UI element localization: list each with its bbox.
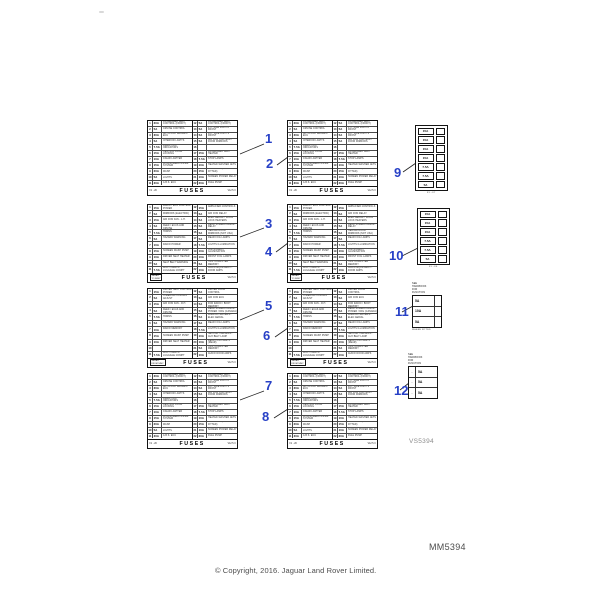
footer-left-code: F1 - 20 xyxy=(288,190,298,192)
fuse-description: HAZARD WARNING xyxy=(302,236,332,241)
strip-box: 15A15A15A15A7.5A7.5A5A xyxy=(415,125,448,191)
fuse-rating xyxy=(338,145,347,150)
fuse-description: ANTI-LOCK BRAKES / ECU xyxy=(162,386,192,391)
callout-2: 2 xyxy=(266,157,273,170)
fuse-description: LCD HARNESS LOOM FOR RADIO / BOOT MEMORY xyxy=(207,302,237,307)
fuse-table-half: 115ARADIO / ECU CONTROL POWER25AMIRRORS … xyxy=(148,205,192,273)
fuse-description xyxy=(207,145,237,150)
fuse-row: 5A xyxy=(413,317,441,327)
fuse-description: WINDSCREEN WIPER SYSTEM xyxy=(162,163,192,168)
fuse-rating xyxy=(338,398,347,403)
fuse-rating: 5A xyxy=(198,321,207,326)
fuse-slot xyxy=(434,307,441,317)
fuse-description: SUN ROOF (WHERE FITTED) xyxy=(347,169,377,174)
fuse-description: R.H. SIDE LIGHTS FRONT xyxy=(347,386,377,391)
fuse-table-1: 130APASSENGER SEAT CONTROL (FRONT)25ACRU… xyxy=(147,120,238,196)
fuse-rating: 15A xyxy=(198,422,207,427)
fuse-rating: 5A xyxy=(416,367,437,377)
fuse-description: L.H. SIDE LIGHTS FRONT xyxy=(207,127,237,132)
fuse-description: ANTI-LOCK BRAKES / ECU xyxy=(302,386,332,391)
fuse-description: R.H. SIDE LIGHTS FRONT xyxy=(347,133,377,138)
fuse-rating: 5A xyxy=(153,380,162,385)
fuse-rating: 7.5A xyxy=(418,172,434,180)
footer-right-code: V12 5.3 xyxy=(366,190,377,192)
fuse-table-half: 125APASSENGER SEAT CONTROL (FRONT)135AL.… xyxy=(192,374,237,439)
fuse-rating: 15A xyxy=(198,151,207,156)
fuse-description: PASSENGER SEAT CONTROL (FRONT) xyxy=(302,121,332,126)
fuses-title: FUSES xyxy=(166,360,226,366)
fuse-description: COURTESY MIRROR LIGHTS xyxy=(162,175,192,180)
fuse-description: RADIO TELEPHONE IGN FEED / ECUS AND CRUI… xyxy=(302,224,332,229)
diagram-code: VS5394 xyxy=(409,438,434,445)
fuse-description: DRIVER DOOR CONTROL xyxy=(207,289,237,294)
fuse-description: LIGHTS ILLUMINATION xyxy=(207,327,237,332)
fuse-rating xyxy=(153,346,162,351)
fuse-description: CIGAR LIGHTER xyxy=(302,157,332,162)
fuse-description: LIGHTS ILLUMINATION xyxy=(347,327,377,332)
fuse-description: SECOND HARNESS / AUX BELT LAMP xyxy=(207,333,237,338)
fuse-rating: 7.5A xyxy=(338,242,347,247)
fuse-rating: 7.5A xyxy=(420,237,436,245)
fuse-rating: 5A xyxy=(198,346,207,351)
fuse-slot xyxy=(438,237,447,245)
fuse-description: WINDSCREEN WIPER SYSTEM xyxy=(162,416,192,421)
fuse-rating: 30A xyxy=(293,121,302,126)
fuse-description: MIRROR HEATERS / ELEC AERIAL xyxy=(207,314,237,319)
fuse-description: ELEC AERIAL / DOOR LOCK HEATERS xyxy=(347,217,377,222)
fuse-table-footer: SEDANTO 94MYFUSESV12 5.3 xyxy=(288,273,377,283)
fuse-description: AIR CON RELAY xyxy=(207,211,237,216)
fuses-title: FUSES xyxy=(162,275,226,281)
fuse-rating: 30A xyxy=(153,386,162,391)
fuse-description: HEADLAMP POWER WASH xyxy=(162,169,192,174)
fuse-description: STOP LAMPS xyxy=(207,157,237,162)
fuse-rating: 5A xyxy=(338,217,347,222)
fuse-rating: 7.5A xyxy=(198,242,207,247)
fuse-rating: 5A xyxy=(413,296,434,306)
fuse-rating: 10A xyxy=(153,410,162,415)
fuse-description: INSTRUMENT ILLUMINATION xyxy=(207,249,237,254)
fuse-description xyxy=(302,346,332,351)
fuse-rating: 5A xyxy=(153,175,162,180)
fuse-rating: 15A xyxy=(293,289,302,294)
fuse-description: CIGAR LIGHTER xyxy=(302,410,332,415)
fuse-description: HEADLAMP POWER WASH xyxy=(162,422,192,427)
fuse-rating: 15A xyxy=(198,404,207,409)
fuse-row: 10A xyxy=(413,307,441,318)
fuse-rating: 7.5A xyxy=(153,398,162,403)
footer-right-code: V12 5.3 xyxy=(366,443,377,445)
fuse-rating: 5A xyxy=(413,317,434,327)
fuse-rating: 5A xyxy=(418,181,434,189)
fuse-rating: 10A xyxy=(293,255,302,260)
fuse-description: AMPLIFIER CONTROLS xyxy=(207,205,237,210)
fuse-rating: 15A xyxy=(338,151,347,156)
fuse-description: AIR CON FAN - R.H. xyxy=(302,302,332,307)
fuse-rating: 15A xyxy=(338,205,347,210)
fuse-description: AIR CON ECU xyxy=(347,295,377,300)
fuse-description: RADIO / ECU CONTROL POWER xyxy=(302,205,332,210)
fuse-description: DIRECTION INDICATORS xyxy=(162,398,192,403)
fuse-description: AIR CON CONTROL / DOOR MIRRORS xyxy=(347,139,377,144)
fuse-rating: 10A xyxy=(413,307,434,317)
fuse-table-footer: SEDANFROM 94MYFUSESV12 5.3 xyxy=(148,358,237,368)
footer-variant-box: SEDANTO 94MY xyxy=(290,274,303,281)
fuse-rating: 5A xyxy=(198,224,207,229)
fuse-description: STOP LAMPS xyxy=(347,157,377,162)
fuse-table-footer: F1 - 20FUSESV12 5.3 xyxy=(148,186,237,196)
fuse-rating: 10A xyxy=(338,175,347,180)
footer-right-code: V12 5.3 xyxy=(366,362,377,364)
fuse-rating: 15A xyxy=(198,169,207,174)
fuse-rating: 5A xyxy=(293,295,302,300)
fuse-description: CENTRAL DOOR LOCKING xyxy=(162,151,192,156)
fuse-rating: 5A xyxy=(338,121,347,126)
fuse-table-5: 115ADRIVER SEAT CONTROL POWER25ASTEERING… xyxy=(147,288,238,368)
fuse-description: LCD HARNESS LOOM FOR RADIO / BOOT MEMORY xyxy=(347,302,377,307)
fuse-rating: 7.5A xyxy=(198,327,207,332)
leader-line-8 xyxy=(274,409,288,418)
fuse-description: REAR FOG LAMPS xyxy=(347,321,377,326)
fuses-title: FUSES xyxy=(158,188,226,194)
fuse-description: SCREEN WASH PUMP xyxy=(302,249,332,254)
fuse-rating: 7.5A xyxy=(338,410,347,415)
fuse-table-half: 125ADRIVER DOOR CONTROL135AAIR CON ECU14… xyxy=(332,289,377,358)
fuse-rating: 7.5A xyxy=(153,314,162,319)
fuses-title: FUSES xyxy=(306,360,366,366)
fuse-description: CRUISE CONTROL xyxy=(302,127,332,132)
fuse-description: PASSENGER SEAT CONTROL (FRONT) xyxy=(302,374,332,379)
fuse-rating: 15A xyxy=(293,416,302,421)
fuse-rating: 10A xyxy=(153,157,162,162)
fuse-slot xyxy=(438,255,447,263)
fuse-description: INTERIOR LIGHTS xyxy=(302,139,332,144)
fuse-table-half: 130APASSENGER SEAT CONTROL (FRONT)25ACRU… xyxy=(288,374,332,439)
fuse-rating: 5A xyxy=(153,308,162,313)
fuse-description: MIRRORS (ELECTRIC) xyxy=(162,211,192,216)
fuse-description: HAZARD WARNING xyxy=(302,321,332,326)
fuse-rating: 15A xyxy=(418,145,434,153)
mini-table-caption: WHERE FITTED xyxy=(412,329,442,331)
fuse-rating: 7.5A xyxy=(153,145,162,150)
mini-table-11: SEEHANDBOOKFORFUNCTION5A10A5AWHERE FITTE… xyxy=(412,282,442,331)
fuse-description: PASSENGER SEAT CONTROL (FRONT) xyxy=(347,121,377,126)
fuse-row: -5A xyxy=(409,388,437,398)
footer-variant-line: FROM 94MY xyxy=(152,363,164,366)
fuse-rating: 10A xyxy=(198,249,207,254)
fuse-slot-dash: - xyxy=(409,378,416,388)
fuse-description: CRUISE CONTROL xyxy=(162,380,192,385)
fuse-table-half: 115ADRIVER SEAT CONTROL POWER25ASTEERING… xyxy=(288,289,332,358)
fuse-description xyxy=(347,398,377,403)
fuse-description: HORNS xyxy=(162,314,192,319)
fuse-rating: 5A xyxy=(198,302,207,307)
footer-right-code: V12 5.3 xyxy=(226,190,237,192)
fuse-rating: 5A xyxy=(293,139,302,144)
footer-variant-box: SEDANFROM 94MY xyxy=(150,359,166,366)
fuse-description: AMPLIFIER CONTROLS xyxy=(347,205,377,210)
fuse-description: CRUISE CONTROL xyxy=(302,380,332,385)
fuse-table-half: 130APASSENGER SEAT CONTROL (FRONT)25ACRU… xyxy=(288,121,332,186)
fuse-description: DRIVER SEAT HEATER xyxy=(302,340,332,345)
fuse-rating: 5A xyxy=(293,428,302,433)
fuse-description: HEATED DOOR MIRRORS (NOT USA) xyxy=(207,230,237,235)
fuse-description: STOP LAMPS xyxy=(207,410,237,415)
fuse-description: L.H. SIDE LIGHTS FRONT xyxy=(347,380,377,385)
fuse-table-footer: F1 - 20FUSESV12 5.3 xyxy=(288,186,377,196)
fuse-rating: 10A xyxy=(293,340,302,345)
fuse-description: TRIP COMPUTER MEMORY xyxy=(207,346,237,351)
fuse-rating: 15A xyxy=(153,151,162,156)
fuse-description: SUN ROOF (WHERE FITTED) xyxy=(207,169,237,174)
fuse-description: REAR FOG LAMPS (REAR) xyxy=(207,340,237,345)
fuse-rating: 5A xyxy=(153,139,162,144)
fuses-title: FUSES xyxy=(298,188,366,194)
fuse-description: INTERIOR LIGHTS xyxy=(162,392,192,397)
fuse-rating: 5A xyxy=(198,380,207,385)
fuse-rating: 5A xyxy=(198,386,207,391)
fuse-table-2: 130APASSENGER SEAT CONTROL (FRONT)25ACRU… xyxy=(287,120,378,196)
fuse-rating: 30A xyxy=(293,133,302,138)
mini-header-line: FUNCTION xyxy=(408,362,438,365)
fuse-description: STEERING COLUMN ADJUST xyxy=(302,295,332,300)
fuse-table-half: 1215AAMPLIFIER CONTROLS135AAIR CON RELAY… xyxy=(192,205,237,273)
fuse-table-footer: F1 - 20FUSESV12 5.3 xyxy=(288,439,377,449)
fuse-rating: 5A xyxy=(198,392,207,397)
leader-line-10 xyxy=(402,248,418,256)
fuse-description: AIR CON CONTROL / DOOR MIRRORS xyxy=(207,139,237,144)
fuse-slot xyxy=(436,128,445,136)
fuse-slot xyxy=(436,145,445,153)
fuse-rating: 5A xyxy=(293,261,302,266)
fuse-description: CIGAR LIGHTER xyxy=(162,410,192,415)
footer-right-code: V12 5.3 xyxy=(226,443,237,445)
fuse-rating: 10A xyxy=(338,255,347,260)
fuse-rating: 5A xyxy=(293,127,302,132)
fuse-description: DRIVER SEAT HEATER xyxy=(162,340,192,345)
callout-1: 1 xyxy=(265,132,272,145)
fuse-rating: 15A xyxy=(153,302,162,307)
fuse-rating: 15A xyxy=(338,404,347,409)
fuse-rating: 10A xyxy=(153,340,162,345)
footer-variant-box: SEDANTO 94MY xyxy=(150,274,163,281)
fuse-description: HEADLAMP POWER WASH xyxy=(302,422,332,427)
fuse-description: HORNS xyxy=(302,230,332,235)
fuse-rating: 5A xyxy=(198,374,207,379)
fuse-description: ELEC AERIAL / DOOR LOCK HEATERS xyxy=(207,217,237,222)
fuse-rating: 15A xyxy=(420,228,436,236)
fuse-table-body: 130APASSENGER SEAT CONTROL (FRONT)25ACRU… xyxy=(288,374,377,439)
fuse-description: PASSENGER SEAT HEATER xyxy=(347,151,377,156)
fuse-description: AIR CON ECU xyxy=(207,295,237,300)
fuse-description: DIRECTION INDICATORS xyxy=(302,398,332,403)
fuse-description: PASSENGER SEAT HEATER xyxy=(347,404,377,409)
fuse-rating: 5A xyxy=(338,346,347,351)
fuse-rating: 5A xyxy=(338,139,347,144)
fuse-description: WINDSCREEN WIPER SYSTEM xyxy=(302,163,332,168)
fuse-rating: 10A xyxy=(338,428,347,433)
callout-7: 7 xyxy=(265,379,272,392)
strip-table-9: 15A15A15A15A7.5A7.5A5AF1 - F7 xyxy=(415,125,448,194)
fuse-table-footer: F1 - 20FUSESV12 5.3 xyxy=(148,439,237,449)
fuse-description: REAR FOG LAMPS xyxy=(207,321,237,326)
fuse-rating: 15A xyxy=(418,136,434,144)
fuse-description: RADIO / ECU CONTROL POWER xyxy=(162,205,192,210)
catalog-page: 130APASSENGER SEAT CONTROL (FRONT)25ACRU… xyxy=(0,0,600,600)
fuse-rating: 20A xyxy=(153,422,162,427)
callout-11: 11 xyxy=(395,305,409,318)
fuse-description: AIR CON FAN - R.H. xyxy=(162,302,192,307)
copyright-line: © Copyright, 2016. Jaguar Land Rover Lim… xyxy=(215,566,376,575)
fuse-rating: 5A xyxy=(198,121,207,126)
fuse-rating: 5A xyxy=(153,127,162,132)
fuse-description: DRIVER SEAT CONTROL POWER xyxy=(162,289,192,294)
fuse-description: AIR CON CONTROL / DOOR MIRRORS xyxy=(207,392,237,397)
fuse-rating: 7.5A xyxy=(293,398,302,403)
fuse-rating: 10A xyxy=(198,175,207,180)
fuse-table-body: 115ADRIVER SEAT CONTROL POWER25ASTEERING… xyxy=(148,289,237,358)
fuse-description: SCREEN POWER RELAY xyxy=(207,428,237,433)
fuse-rating: 15A xyxy=(293,404,302,409)
footer-left-code: F1 - 20 xyxy=(148,443,158,445)
fuse-description: LIGHTS ILLUMINATION xyxy=(207,242,237,247)
fuse-rating: 15A xyxy=(338,422,347,427)
fuse-description: PASSENGER SEAT CONTROL (FRONT) xyxy=(162,121,192,126)
fuse-rating: 5A xyxy=(153,211,162,216)
fuses-title: FUSES xyxy=(158,441,226,447)
fuse-rating: 5A xyxy=(338,127,347,132)
fuses-title: FUSES xyxy=(298,441,366,447)
fuse-rating: 15A xyxy=(198,205,207,210)
fuse-rating: 5A xyxy=(293,175,302,180)
fuse-slot xyxy=(436,136,445,144)
strip-slot-column xyxy=(436,128,445,189)
fuse-description: PASSENGER SEAT CONTROL (FRONT) xyxy=(207,374,237,379)
fuse-rating: 5A xyxy=(198,308,207,313)
callout-8: 8 xyxy=(262,410,269,423)
fuse-rating: 10A xyxy=(293,327,302,332)
fuse-rating: 5A xyxy=(153,321,162,326)
fuse-description: SECOND HARNESS / AUX BELT LAMP xyxy=(347,333,377,338)
fuse-rating: 15A xyxy=(153,163,162,168)
fuse-rating: 5A xyxy=(198,295,207,300)
mini-table-box: -5A-5A-5A xyxy=(408,366,438,399)
fuse-rating: 15A xyxy=(418,128,434,136)
fuse-description: CENTRAL DOOR LOCKING xyxy=(302,404,332,409)
fuse-description: SCREEN POWER RELAY xyxy=(347,428,377,433)
fuse-rating: 15A xyxy=(153,404,162,409)
fuse-rating: 5A xyxy=(338,308,347,313)
leader-line-5 xyxy=(240,310,264,320)
fuse-rating: 7.5A xyxy=(293,145,302,150)
footer-variant-line: FROM 94MY xyxy=(292,363,304,366)
fuse-rating: 15A xyxy=(338,169,347,174)
fuse-rating: 10A xyxy=(153,255,162,260)
fuse-description: R.H. SIDE LIGHTS FRONT xyxy=(207,386,237,391)
fuse-description: SCREEN WASH PUMP xyxy=(162,333,192,338)
figure-code: MM5394 xyxy=(429,542,466,552)
fuse-rating: 5A xyxy=(338,302,347,307)
fuse-rating: 5A xyxy=(338,230,347,235)
fuse-table-footer: SEDANFROM 94MYFUSESV12 5.3 xyxy=(288,358,377,368)
fuses-title: FUSES xyxy=(302,275,366,281)
fuse-rating xyxy=(198,398,207,403)
fuse-table-half: 125APASSENGER SEAT CONTROL (FRONT)135AL.… xyxy=(332,121,377,186)
fuse-rating: 5A xyxy=(416,378,437,388)
fuse-description: REAR SCREEN DEMIST POWER / DRL (CANADA) xyxy=(347,308,377,313)
fuse-rating: 5A xyxy=(293,392,302,397)
fuse-description: SCREEN WASH PUMP xyxy=(162,249,192,254)
fuse-slot xyxy=(436,172,445,180)
fuse-rating: 15A xyxy=(293,163,302,168)
fuse-rating: 10A xyxy=(198,255,207,260)
fuse-rating: 7.5A xyxy=(338,327,347,332)
fuse-slot xyxy=(434,296,441,306)
fuse-rating: 15A xyxy=(153,289,162,294)
fuse-rating: 5A xyxy=(198,289,207,294)
fuse-description: SCREEN WASH PUMP xyxy=(302,333,332,338)
fuse-description: ANTI-LOCK BRAKES / ECU xyxy=(302,133,332,138)
fuse-description: HORNS xyxy=(162,230,192,235)
fuse-description: DRIVER DOOR CONTROL xyxy=(347,289,377,294)
fuse-rating: 15A xyxy=(418,154,434,162)
fuse-table-6: 115ADRIVER SEAT CONTROL POWER25ASTEERING… xyxy=(287,288,378,368)
fuse-rating: 7.5A xyxy=(293,230,302,235)
fuse-description: FRONT FOG LAMPS xyxy=(347,255,377,260)
fuse-rating: 15A xyxy=(153,333,162,338)
leader-line-3 xyxy=(240,228,264,237)
fuse-description: TRIP COMPUTER MEMORY xyxy=(347,346,377,351)
fuse-description xyxy=(347,145,377,150)
fuse-rating: 30A xyxy=(293,386,302,391)
fuse-description: CENTRAL DOOR LOCKING xyxy=(302,151,332,156)
fuse-rating: 5A xyxy=(338,261,347,266)
fuse-slot-dash: - xyxy=(409,388,416,398)
fuse-rating: 5A xyxy=(293,308,302,313)
mini-table-header: SEEHANDBOOKFORFUNCTION xyxy=(412,282,442,294)
fuse-description: RADIO POWER xyxy=(302,242,332,247)
fuse-description: REAR FOG LAMPS xyxy=(207,236,237,241)
fuse-table-footer: SEDANTO 94MYFUSESV12 5.3 xyxy=(148,273,237,283)
fuse-table-body: 115ARADIO / ECU CONTROL POWER25AMIRRORS … xyxy=(148,205,237,273)
fuse-slot xyxy=(434,317,441,327)
fuse-description: HORNS xyxy=(302,314,332,319)
fuse-rating: 5A xyxy=(338,321,347,326)
fuse-description: STEERING COLUMN ADJUST xyxy=(162,295,192,300)
strip-slot-column xyxy=(438,211,447,263)
fuse-description: LIGHTS ILLUMINATION xyxy=(347,242,377,247)
fuse-table-body: 115ARADIO / ECU CONTROL POWER25AMIRRORS … xyxy=(288,205,377,273)
fuse-rating: 5A xyxy=(338,224,347,229)
fuse-description: COURTESY MIRROR LIGHTS xyxy=(302,175,332,180)
fuse-rating: 10A xyxy=(198,416,207,421)
fuse-table-8: 130APASSENGER SEAT CONTROL (FRONT)25ACRU… xyxy=(287,373,378,449)
leader-line-1 xyxy=(240,144,264,154)
fuse-rating: 15A xyxy=(293,217,302,222)
fuse-description: DRIVER SEAT HEATER xyxy=(162,255,192,260)
fuse-rating: 15A xyxy=(293,205,302,210)
mini-table-12: SEEHANDBOOKFORFUNCTION-5A-5A-5A xyxy=(408,353,438,399)
fuse-rating: 5A xyxy=(153,428,162,433)
fuse-rating: 5A xyxy=(198,139,207,144)
fuse-description: SEAT BELT WARNING xyxy=(302,261,332,266)
leader-line-7 xyxy=(240,391,264,400)
fuse-rating: 10A xyxy=(338,333,347,338)
fuse-rating: 5A xyxy=(338,289,347,294)
fuse-rating: 5A xyxy=(293,211,302,216)
fuse-rating: 15A xyxy=(153,416,162,421)
fuse-description: MIRROR HEATERS / ELEC AERIAL xyxy=(347,314,377,319)
